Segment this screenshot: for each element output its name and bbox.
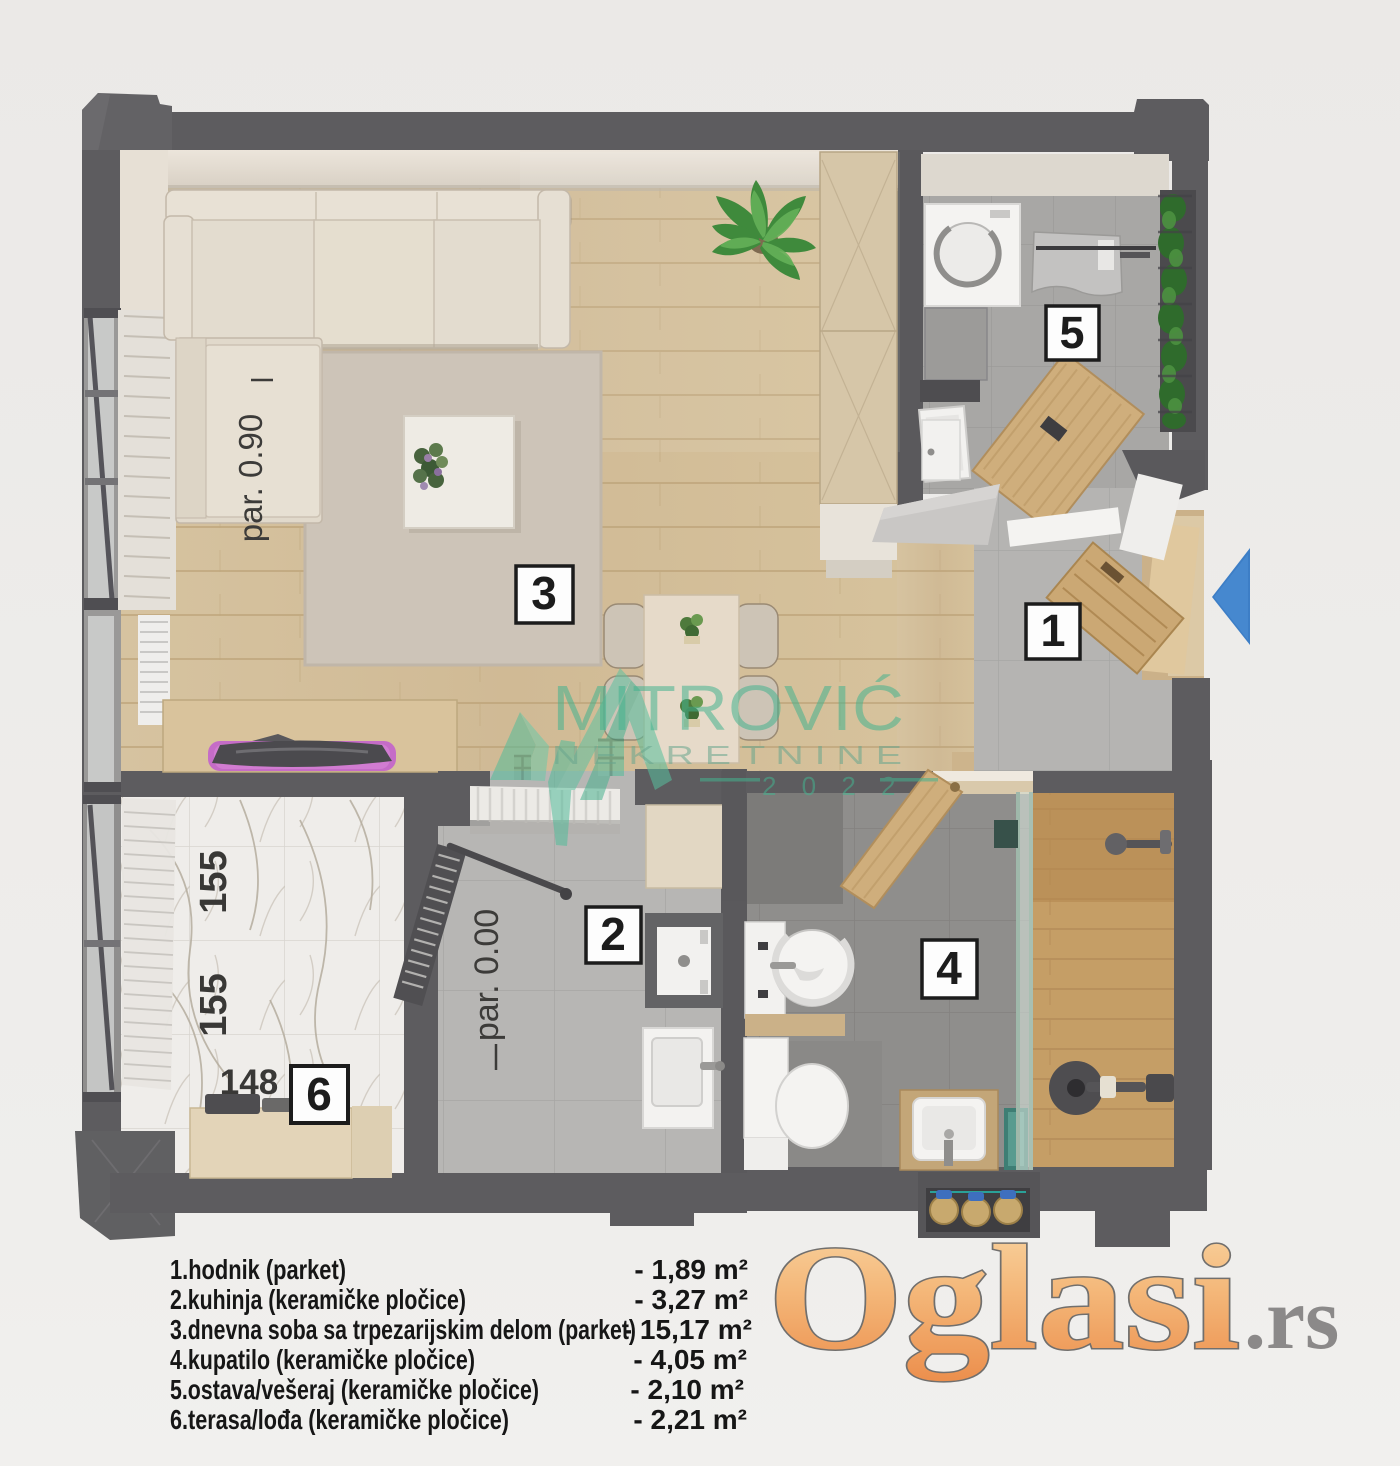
svg-text:2: 2 — [600, 908, 626, 960]
svg-text:Oglasi: Oglasi — [768, 1215, 1240, 1381]
svg-text:2.kuhinja (keramičke pločice): 2.kuhinja (keramičke pločice) — [170, 1284, 466, 1315]
svg-text:4.kupatilo (keramičke pločice): 4.kupatilo (keramičke pločice) — [170, 1344, 475, 1375]
svg-text:5.ostava/vešeraj (keramičke pl: 5.ostava/vešeraj (keramičke pločice) — [170, 1374, 539, 1405]
svg-text:2 0 2 2: 2 0 2 2 — [762, 771, 905, 801]
svg-text:- 1,89 m²: - 1,89 m² — [634, 1254, 748, 1285]
svg-text:5: 5 — [1059, 307, 1084, 358]
svg-text:par. 0.90: par. 0.90 — [232, 414, 269, 542]
svg-text:155: 155 — [193, 850, 235, 913]
svg-text:1: 1 — [1040, 605, 1065, 656]
svg-text:- 2,10 m²: - 2,10 m² — [630, 1374, 744, 1405]
svg-text:3.dnevna soba sa trpezarijskim: 3.dnevna soba sa trpezarijskim delom (pa… — [170, 1314, 636, 1345]
svg-text:- 3,27 m²: - 3,27 m² — [634, 1284, 748, 1315]
svg-text:3: 3 — [531, 567, 557, 619]
svg-text:- 2,21 m²: - 2,21 m² — [633, 1404, 747, 1435]
svg-text:par. 0.00: par. 0.00 — [468, 909, 506, 1041]
svg-text:1.hodnik (parket): 1.hodnik (parket) — [170, 1254, 346, 1285]
svg-text:4: 4 — [936, 942, 962, 994]
svg-text:.rs: .rs — [1244, 1271, 1339, 1368]
svg-text:6: 6 — [306, 1068, 332, 1120]
svg-text:N E K R E T N I N E: N E K R E T N I N E — [552, 740, 902, 770]
svg-text:148: 148 — [220, 1063, 278, 1102]
svg-text:- 15,17 m²: - 15,17 m² — [623, 1314, 752, 1345]
svg-text:155: 155 — [193, 973, 235, 1036]
svg-text:6.terasa/lođa (keramičke ploči: 6.terasa/lođa (keramičke pločice) — [170, 1404, 509, 1435]
svg-text:- 4,05 m²: - 4,05 m² — [633, 1344, 747, 1375]
svg-text:MITROVIĆ: MITROVIĆ — [552, 672, 904, 744]
